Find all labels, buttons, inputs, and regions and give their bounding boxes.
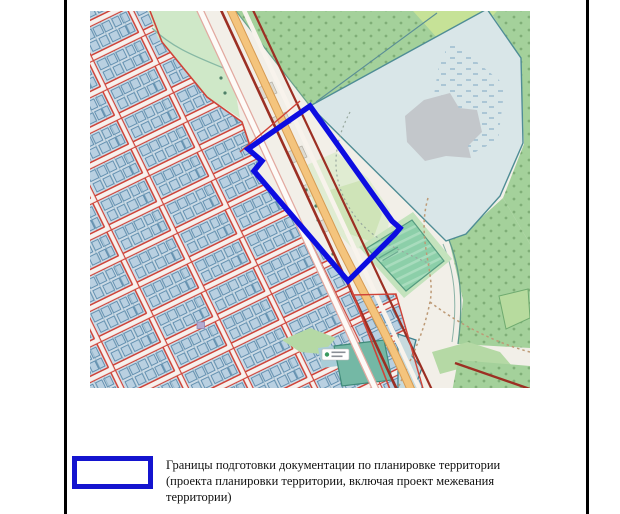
poi-icon [325, 352, 329, 356]
planning-map [90, 11, 530, 388]
legend-text: Границы подготовки документации по плани… [166, 457, 576, 505]
legend-swatch [72, 456, 153, 489]
page-frame-right [586, 0, 589, 514]
purple-building [197, 322, 205, 329]
legend-line-3: территории) [166, 489, 576, 505]
legend-line-1: Границы подготовки документации по плани… [166, 457, 576, 473]
page-frame-left [64, 0, 67, 514]
document-page: Границы подготовки документации по плани… [0, 0, 620, 514]
legend-line-2: (проекта планировки территории, включая … [166, 473, 576, 489]
